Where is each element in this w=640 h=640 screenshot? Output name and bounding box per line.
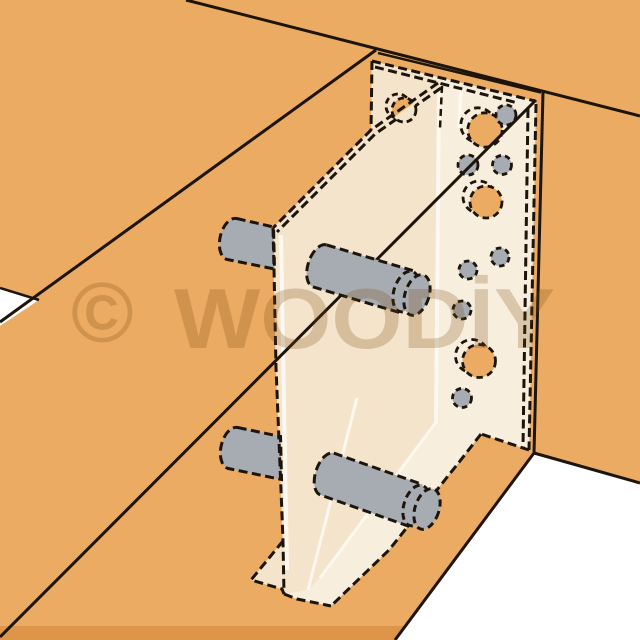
svg-text:WOODİY: WOODİY <box>174 272 555 367</box>
svg-text:©: © <box>71 266 134 361</box>
